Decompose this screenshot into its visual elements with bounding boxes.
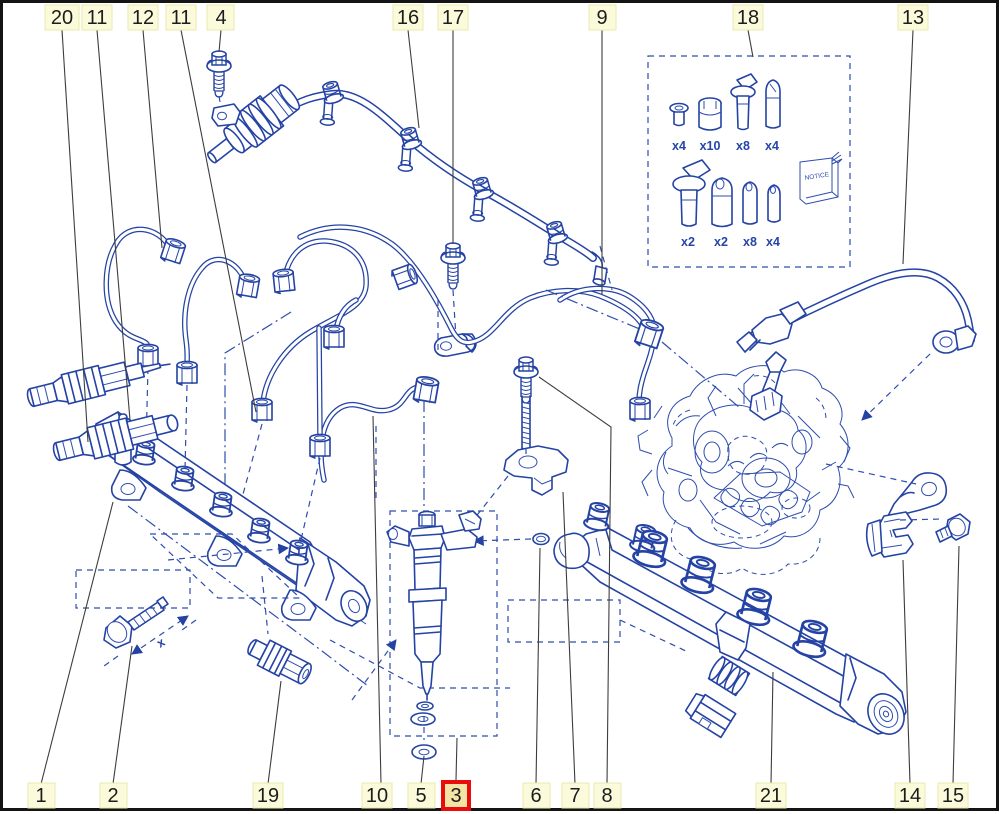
svg-text:12: 12 xyxy=(132,7,154,29)
svg-text:9: 9 xyxy=(596,7,607,29)
svg-text:15: 15 xyxy=(942,785,964,807)
svg-text:16: 16 xyxy=(397,7,419,29)
svg-text:5: 5 xyxy=(415,785,426,807)
svg-text:x4: x4 xyxy=(672,139,686,153)
svg-text:20: 20 xyxy=(51,7,73,29)
svg-text:x4: x4 xyxy=(765,139,779,153)
svg-text:x4: x4 xyxy=(766,235,780,249)
svg-text:18: 18 xyxy=(737,7,759,29)
svg-text:19: 19 xyxy=(257,785,279,807)
svg-text:x10: x10 xyxy=(700,139,721,153)
svg-text:4: 4 xyxy=(215,7,226,29)
svg-text:x8: x8 xyxy=(743,235,757,249)
svg-text:x2: x2 xyxy=(681,235,695,249)
svg-text:2: 2 xyxy=(107,785,118,807)
svg-text:1: 1 xyxy=(35,785,46,807)
svg-text:10: 10 xyxy=(366,785,388,807)
svg-text:7: 7 xyxy=(569,785,580,807)
svg-text:8: 8 xyxy=(601,785,612,807)
svg-text:3: 3 xyxy=(450,785,461,807)
svg-text:14: 14 xyxy=(899,785,921,807)
svg-text:x8: x8 xyxy=(736,139,750,153)
svg-text:11: 11 xyxy=(87,7,108,29)
svg-text:13: 13 xyxy=(902,7,924,29)
svg-text:11: 11 xyxy=(171,7,192,29)
svg-text:x2: x2 xyxy=(714,235,728,249)
svg-text:6: 6 xyxy=(530,785,541,807)
svg-text:17: 17 xyxy=(442,7,464,29)
svg-text:21: 21 xyxy=(760,785,782,807)
